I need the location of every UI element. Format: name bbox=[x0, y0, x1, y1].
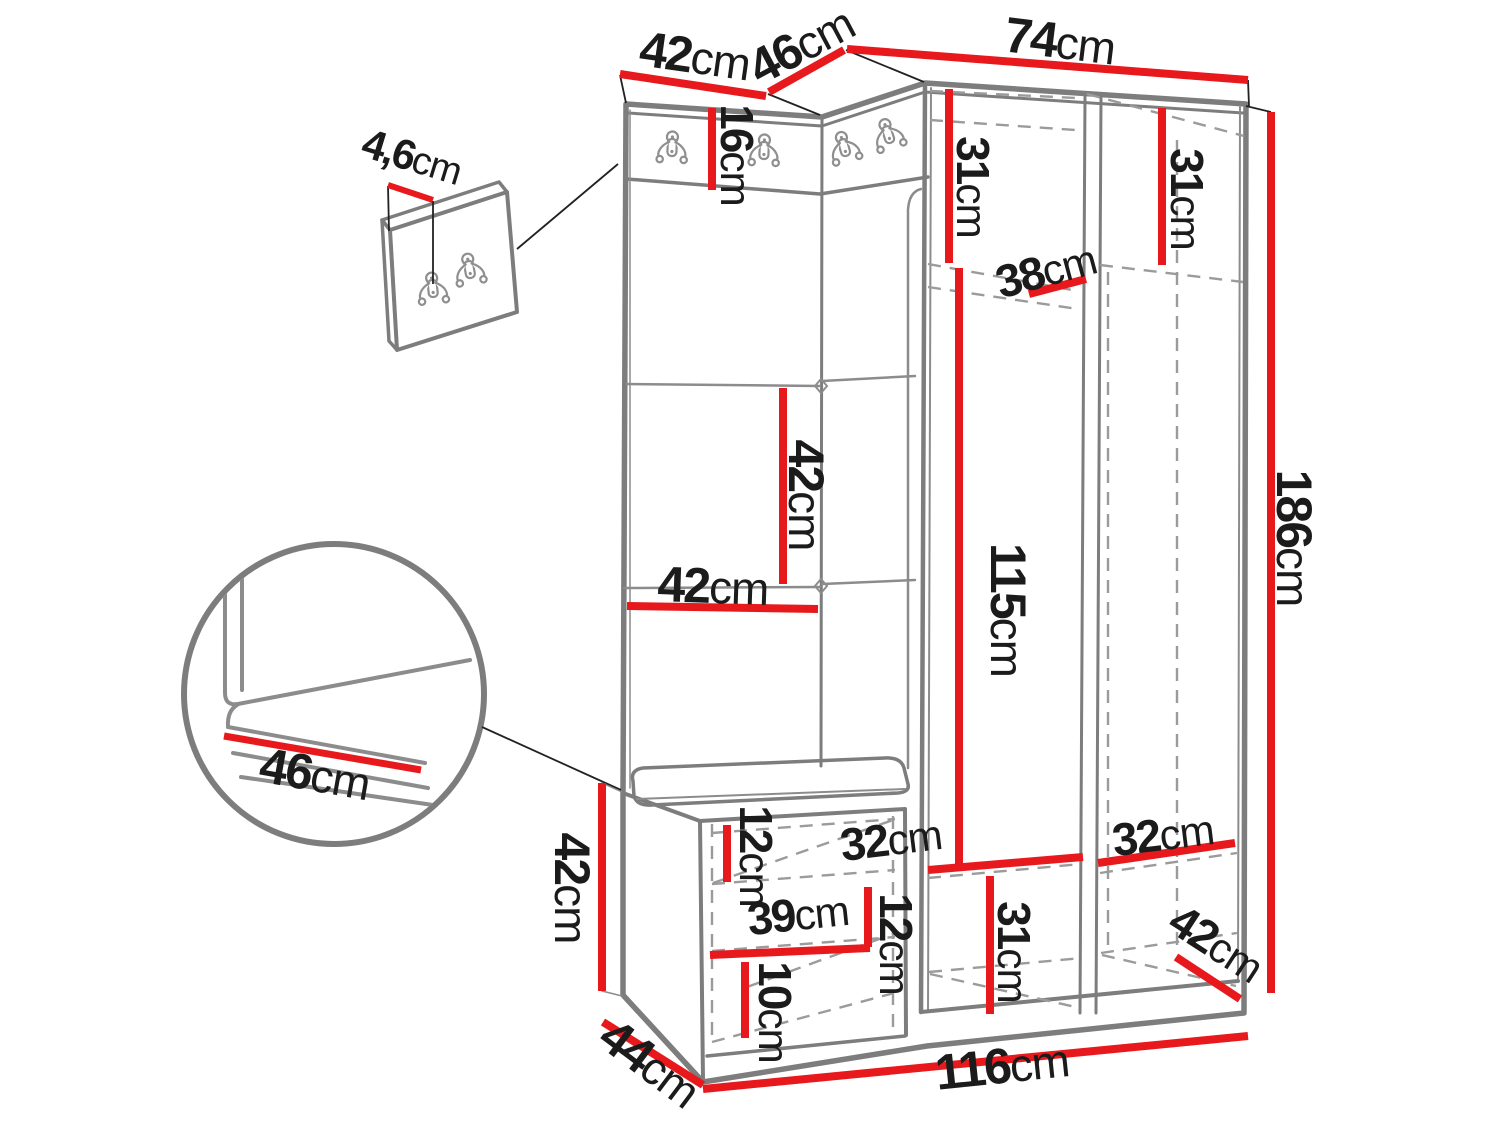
coat-hook-icon bbox=[656, 131, 687, 163]
dim-label-bottom-compartment-height: 31cm bbox=[988, 901, 1040, 1003]
dashed-bench-diag-3 bbox=[712, 993, 894, 1042]
dim-label-panel-width: 42cm bbox=[657, 556, 770, 616]
dim-label-total-height: 186cm bbox=[1266, 470, 1322, 607]
diagram-canvas: 42cm 46cm 74cm 16cm 4,6cm 31cm 31cm 38cm… bbox=[0, 0, 1500, 1125]
dim-label-left-top-shelf-height: 31cm bbox=[947, 136, 999, 238]
dim-line-wall-panel-thickness bbox=[388, 185, 433, 200]
dim-label-hanging-space-height: 115cm bbox=[980, 543, 1036, 677]
dim-label-top-corner-width: 46cm bbox=[739, 0, 863, 96]
dim-label-bench-height: 42cm bbox=[544, 833, 600, 944]
dim-label-right-top-shelf-height: 31cm bbox=[1161, 148, 1213, 250]
dim-label-hook-strip-height: 16cm bbox=[711, 104, 763, 206]
leader-circle-to-bench bbox=[482, 727, 621, 790]
coat-hook-icon bbox=[452, 251, 487, 287]
wall-panel-front bbox=[390, 192, 517, 350]
dim-label-panel-cushion-height: 42cm bbox=[778, 440, 834, 551]
wardrobe-right-inner-edge bbox=[1238, 107, 1240, 982]
coat-hook-icon bbox=[869, 115, 908, 154]
detail-cushion-top-edge bbox=[238, 660, 470, 704]
dim-label-wall-panel-thickness: 4,6cm bbox=[357, 119, 468, 194]
dim-label-bottom-compartment-depth: 42cm bbox=[1160, 894, 1274, 993]
dashed-shelf-right bbox=[1100, 265, 1243, 282]
wardrobe-left-edge bbox=[921, 84, 925, 1012]
coat-hook-icon bbox=[825, 128, 863, 166]
detail-corner-curve bbox=[228, 705, 237, 727]
dim-label-bench-right-compartment: 12cm bbox=[870, 893, 922, 995]
hook-strip-bottom-edge bbox=[627, 177, 928, 194]
bench-front-left-edge bbox=[700, 821, 703, 1080]
wardrobe-door-divider bbox=[1080, 95, 1101, 1013]
dim-label-bench-seat-depth-detail: 46cm bbox=[256, 737, 375, 811]
detail-panel-edge-1 bbox=[225, 548, 238, 704]
leader-wall-panel-to-unit bbox=[517, 164, 618, 249]
angled-panel-right-edge bbox=[908, 189, 921, 768]
dim-label-bottom-right-compartment-width: 32cm bbox=[1109, 802, 1216, 866]
wall-hook-panel-detail bbox=[382, 182, 517, 350]
dim-label-bench-bottom-compartment: 10cm bbox=[749, 961, 801, 1063]
furniture-dimension-drawing: 42cm 46cm 74cm 16cm 4,6cm 31cm 31cm 38cm… bbox=[0, 0, 1500, 1125]
dim-label-bench-inner-width: 39cm bbox=[745, 883, 851, 945]
dim-line-bottom-left-compartment-width bbox=[928, 857, 1083, 870]
panel-seam-upper bbox=[627, 376, 915, 386]
